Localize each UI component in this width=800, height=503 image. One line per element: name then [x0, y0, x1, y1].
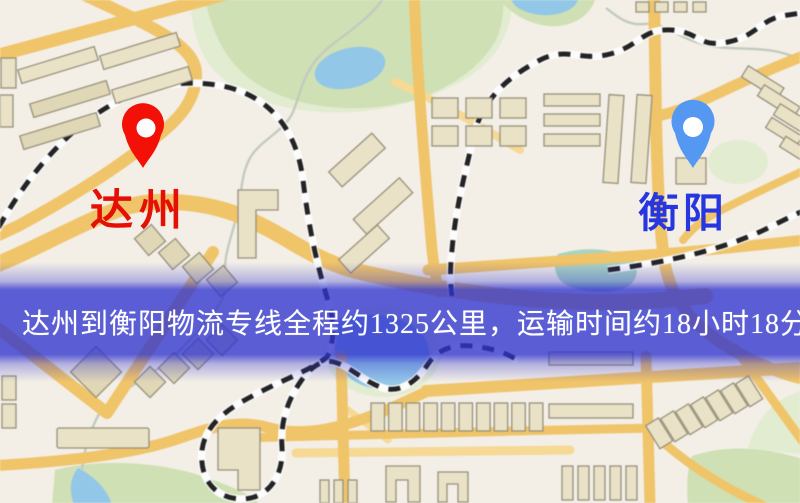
- route-banner: 达州到衡阳物流专线全程约1325公里，运输时间约18小时18分钟.: [0, 262, 800, 382]
- map-canvas: [0, 0, 800, 503]
- origin-city-label: 达州: [90, 176, 188, 238]
- route-banner-text: 达州到衡阳物流专线全程约1325公里，运输时间约18小时18分钟.: [0, 302, 800, 342]
- destination-city-label: 衡阳: [638, 179, 728, 239]
- map-screenshot: 达州到衡阳物流专线全程约1325公里，运输时间约18小时18分钟. 达州 衡阳: [0, 0, 800, 503]
